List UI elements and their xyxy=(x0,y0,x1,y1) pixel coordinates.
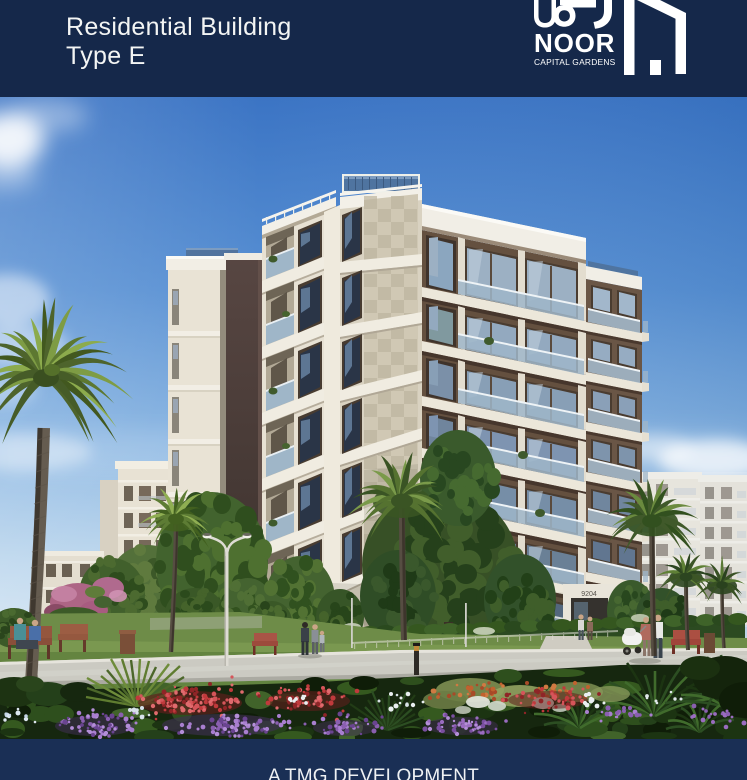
svg-text:NOOR: NOOR xyxy=(534,28,615,58)
svg-text:9204: 9204 xyxy=(581,591,597,598)
svg-text:CAPITAL GARDENS: CAPITAL GARDENS xyxy=(534,57,616,67)
